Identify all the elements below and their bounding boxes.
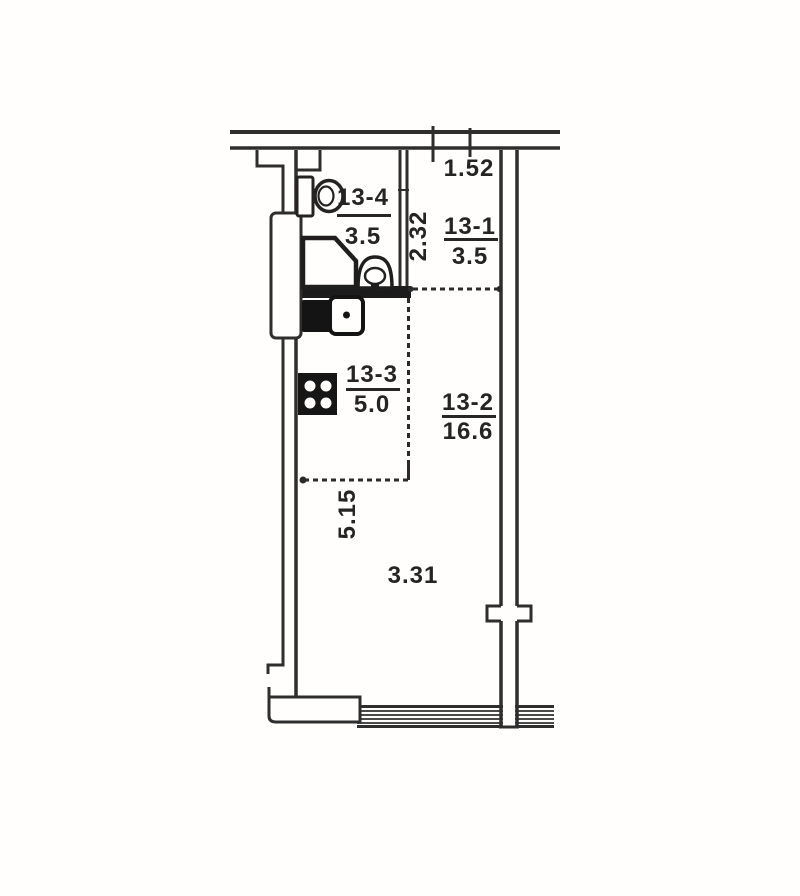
room-area: 5.0	[337, 392, 407, 418]
wall-pier	[271, 213, 301, 338]
boundary-end-dot	[497, 286, 503, 292]
wall-junction-stub-left	[487, 606, 501, 621]
dimension-5-15: 5.15	[335, 479, 361, 549]
room-id: 13-1	[435, 214, 505, 240]
boundary-end-dot	[408, 286, 414, 292]
boundary-end-dot	[300, 477, 307, 484]
room-id: 13-4	[328, 185, 398, 211]
bottom-left-wall	[269, 697, 360, 722]
window-band	[357, 707, 554, 727]
dimension-1-52: 1.52	[434, 156, 504, 182]
room-id: 13-3	[337, 362, 407, 388]
vent-duct	[297, 150, 320, 170]
wall-junction-stub-right	[517, 606, 531, 621]
room-id: 13-2	[433, 390, 503, 416]
room-area: 3.5	[328, 224, 398, 250]
label-underline	[337, 214, 391, 217]
kitchen-sink-icon	[302, 297, 363, 334]
washbasin-icon	[358, 257, 392, 290]
stove-icon	[299, 374, 336, 414]
dimension-3-31: 3.31	[378, 563, 448, 589]
label-underline	[444, 238, 498, 241]
dimension-2-32: 2.32	[406, 201, 432, 271]
room-area: 16.6	[433, 419, 503, 445]
floor-plan-page: 13-4 3.5 13-1 3.5 13-3 5.0 13-2 16.6 1.5…	[0, 0, 800, 896]
floor-plan-drawing	[0, 0, 800, 896]
room-area: 3.5	[435, 244, 505, 270]
